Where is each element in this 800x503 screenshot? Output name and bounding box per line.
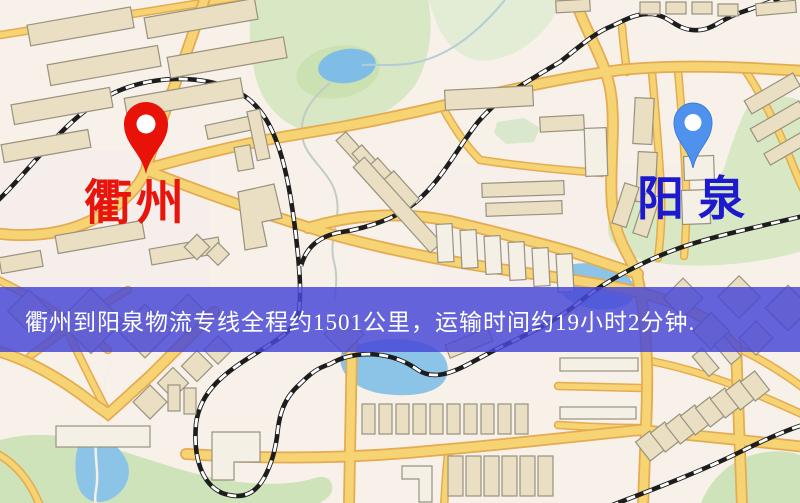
destination-pin-icon[interactable] — [669, 100, 717, 170]
map-canvas — [0, 0, 800, 503]
route-info-text: 衢州到阳泉物流专线全程约1501公里，运输时间约19小时2分钟. — [25, 303, 695, 337]
route-info-banner: 衢州到阳泉物流专线全程约1501公里，运输时间约19小时2分钟. — [0, 287, 800, 352]
destination-city-label: 阳泉 — [637, 177, 759, 224]
logistics-route-map: 衢州 阳泉 衢州到阳泉物流专线全程约1501公里，运输时间约19小时2分钟. — [0, 0, 800, 503]
origin-pin-icon[interactable] — [118, 98, 174, 176]
origin-city-label: 衢州 — [84, 180, 188, 228]
